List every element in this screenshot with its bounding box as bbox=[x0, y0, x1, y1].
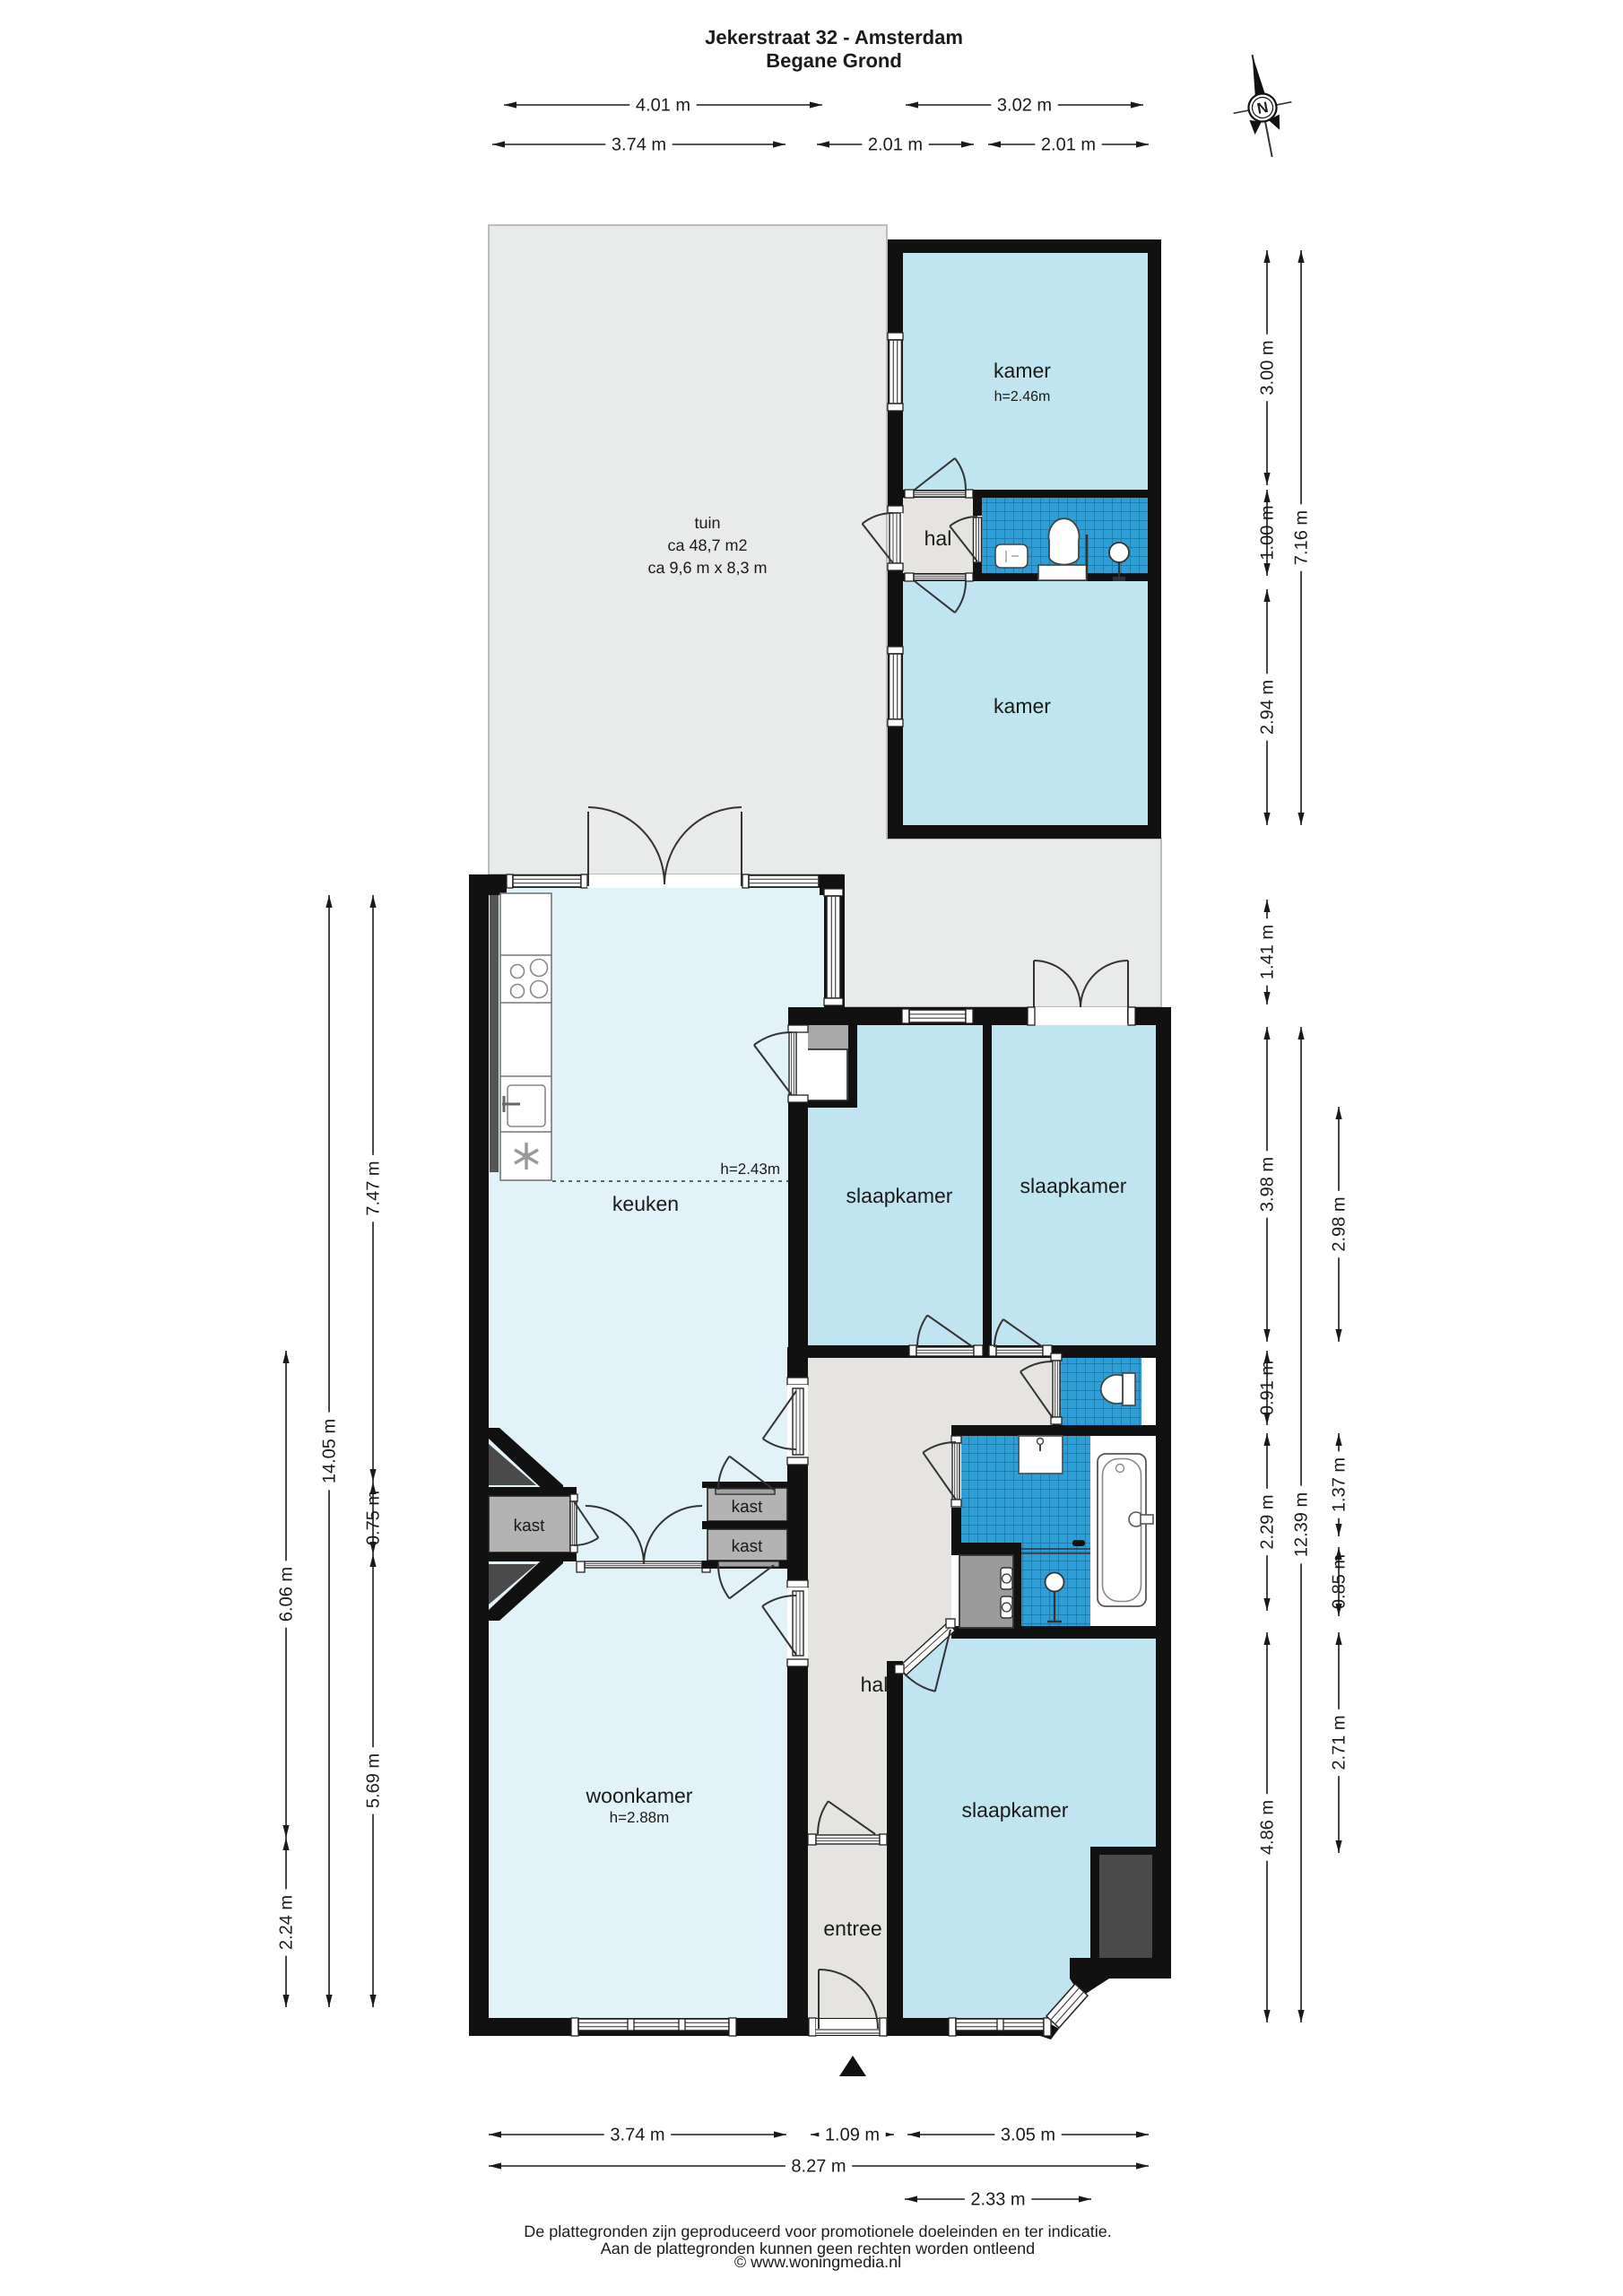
svg-text:entree: entree bbox=[823, 1917, 881, 1940]
svg-text:2.24 m: 2.24 m bbox=[276, 1895, 296, 1950]
svg-text:kast: kast bbox=[732, 1537, 764, 1556]
svg-text:kast: kast bbox=[732, 1498, 764, 1517]
svg-text:2.71 m: 2.71 m bbox=[1329, 1715, 1349, 1770]
svg-text:7.47 m: 7.47 m bbox=[363, 1161, 383, 1215]
svg-text:Jekerstraat 32 - Amsterdam: Jekerstraat 32 - Amsterdam bbox=[705, 26, 963, 48]
svg-text:3.02 m: 3.02 m bbox=[997, 95, 1052, 115]
svg-text:Begane Grond: Begane Grond bbox=[766, 49, 902, 72]
svg-text:2.98 m: 2.98 m bbox=[1329, 1196, 1349, 1251]
svg-text:kast: kast bbox=[514, 1517, 546, 1535]
svg-text:ca 9,6 m x 8,3 m: ca 9,6 m x 8,3 m bbox=[647, 559, 767, 577]
svg-text:woonkamer: woonkamer bbox=[586, 1784, 693, 1807]
svg-text:ca 48,7 m2: ca 48,7 m2 bbox=[667, 536, 747, 554]
svg-text:2.29 m: 2.29 m bbox=[1257, 1494, 1277, 1549]
svg-text:1.37 m: 1.37 m bbox=[1329, 1457, 1349, 1512]
svg-text:h=2.46m: h=2.46m bbox=[994, 389, 1051, 404]
svg-text:3.74 m: 3.74 m bbox=[612, 135, 666, 154]
svg-text:keuken: keuken bbox=[612, 1192, 679, 1215]
svg-text:3.00 m: 3.00 m bbox=[1257, 340, 1277, 395]
svg-text:3.05 m: 3.05 m bbox=[1001, 2125, 1055, 2144]
svg-text:12.39 m: 12.39 m bbox=[1291, 1492, 1311, 1557]
svg-text:3.98 m: 3.98 m bbox=[1257, 1157, 1277, 1212]
svg-text:1.00 m: 1.00 m bbox=[1257, 505, 1277, 560]
svg-text:0.85 m: 0.85 m bbox=[1329, 1554, 1349, 1609]
svg-text:De plattegronden zijn geproduc: De plattegronden zijn geproduceerd voor … bbox=[524, 2222, 1111, 2240]
svg-text:6.06 m: 6.06 m bbox=[276, 1567, 296, 1622]
svg-text:1.09 m: 1.09 m bbox=[825, 2125, 880, 2144]
svg-text:2.01 m: 2.01 m bbox=[868, 135, 923, 154]
svg-text:14.05 m: 14.05 m bbox=[319, 1419, 339, 1483]
svg-text:h=2.88m: h=2.88m bbox=[610, 1809, 670, 1826]
svg-text:4.86 m: 4.86 m bbox=[1257, 1800, 1277, 1855]
svg-text:© www.woningmedia.nl: © www.woningmedia.nl bbox=[734, 2253, 901, 2271]
svg-text:h=2.43m: h=2.43m bbox=[720, 1161, 780, 1178]
svg-text:3.74 m: 3.74 m bbox=[610, 2125, 664, 2144]
svg-text:hal: hal bbox=[924, 526, 952, 550]
svg-text:slaapkamer: slaapkamer bbox=[1020, 1174, 1127, 1197]
svg-text:5.69 m: 5.69 m bbox=[363, 1753, 383, 1808]
svg-text:0.91 m: 0.91 m bbox=[1257, 1361, 1277, 1415]
svg-text:slaapkamer: slaapkamer bbox=[846, 1184, 953, 1207]
svg-text:1.41 m: 1.41 m bbox=[1257, 925, 1277, 979]
svg-text:hal: hal bbox=[861, 1673, 889, 1696]
svg-text:8.27 m: 8.27 m bbox=[791, 2156, 846, 2176]
svg-text:kamer: kamer bbox=[994, 359, 1051, 382]
svg-text:0.75 m: 0.75 m bbox=[363, 1491, 383, 1545]
svg-text:2.01 m: 2.01 m bbox=[1041, 135, 1096, 154]
svg-text:2.33 m: 2.33 m bbox=[970, 2189, 1025, 2209]
svg-text:4.01 m: 4.01 m bbox=[636, 95, 690, 115]
svg-text:tuin: tuin bbox=[694, 514, 720, 532]
svg-text:slaapkamer: slaapkamer bbox=[962, 1798, 1069, 1822]
svg-text:7.16 m: 7.16 m bbox=[1291, 510, 1311, 565]
svg-text:kamer: kamer bbox=[994, 694, 1051, 717]
svg-text:2.94 m: 2.94 m bbox=[1257, 680, 1277, 735]
